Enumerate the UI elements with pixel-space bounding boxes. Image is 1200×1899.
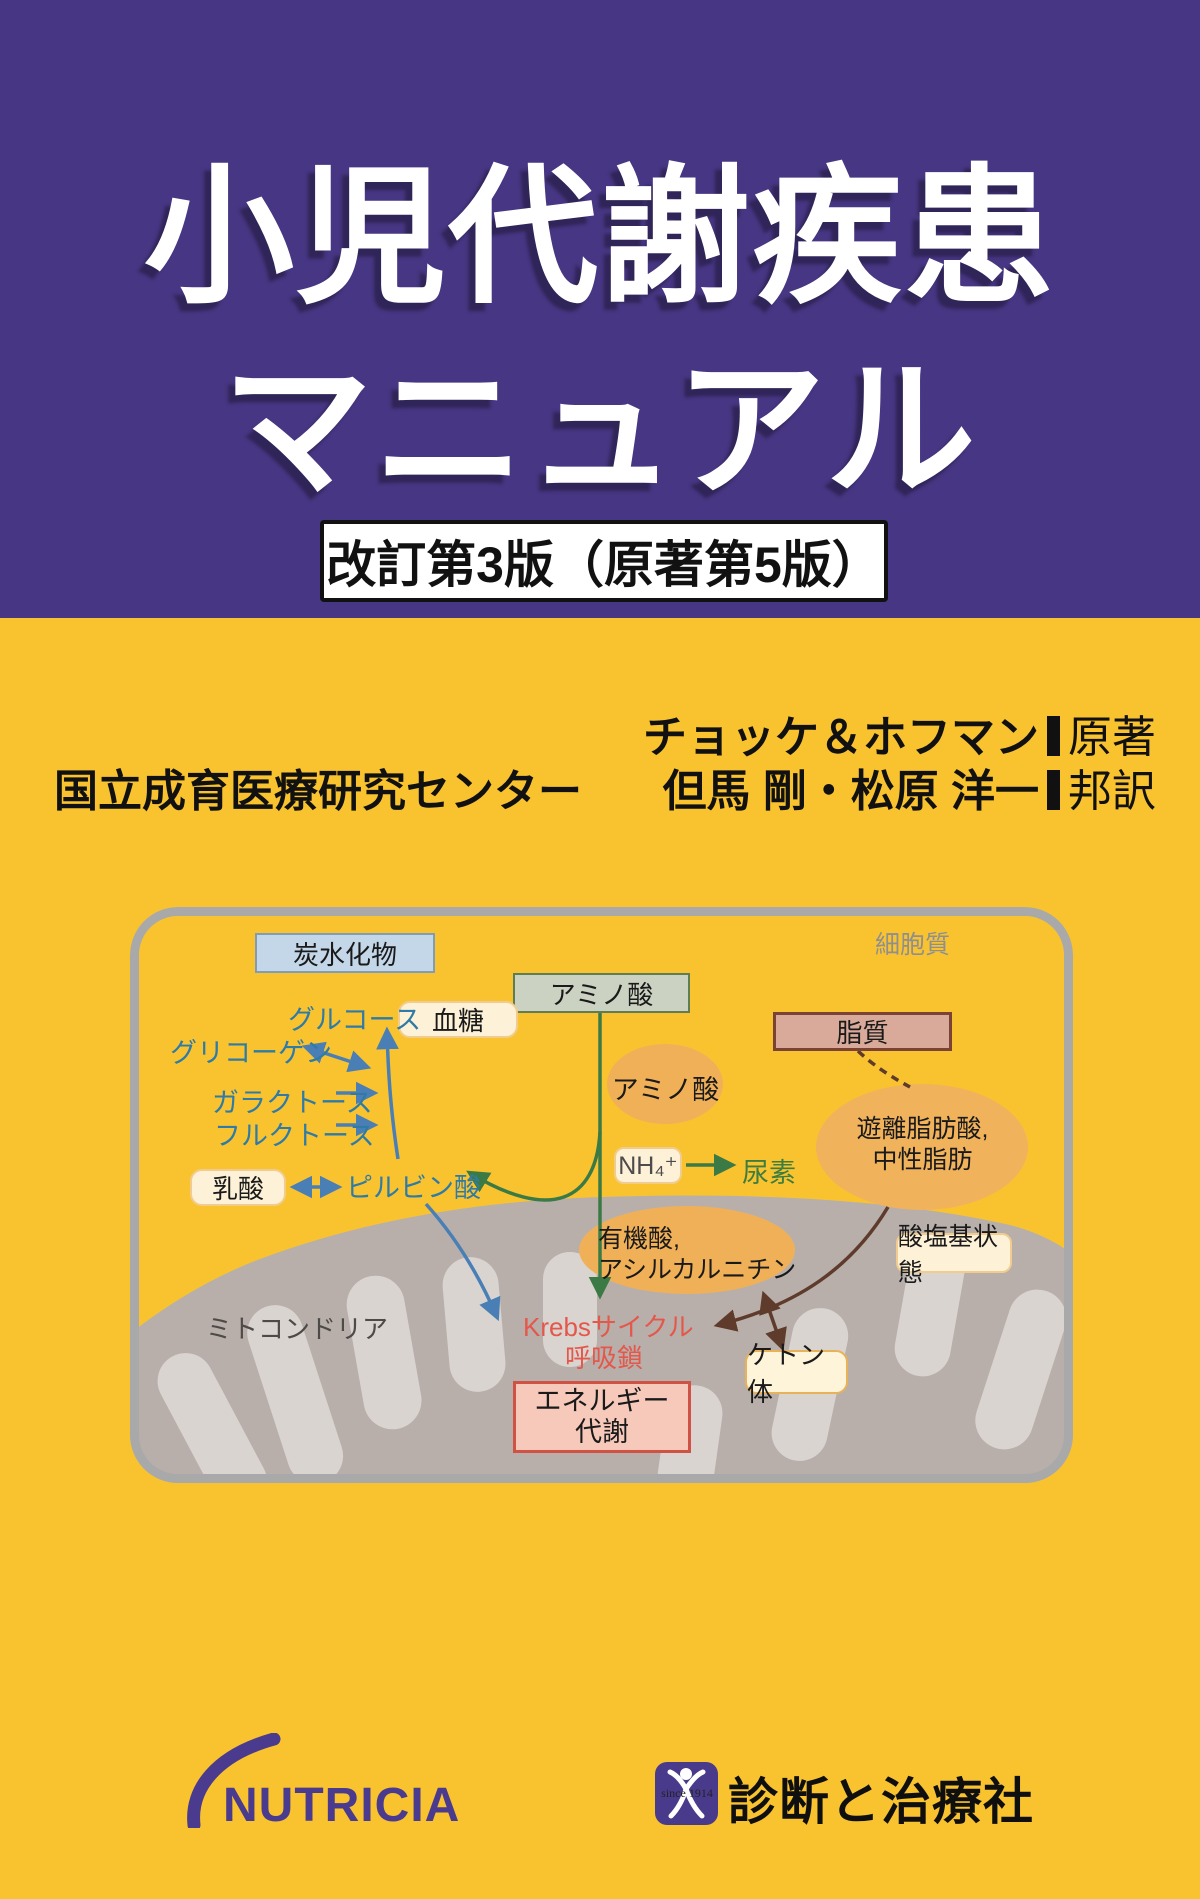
glycogen-label: グリコーゲン xyxy=(170,1031,332,1070)
organic-line1: 有機酸, xyxy=(598,1224,794,1255)
amino-acid-pool-label: アミノ酸 xyxy=(608,1068,723,1107)
institution-label: 国立成育医療研究センター xyxy=(54,755,582,805)
arrow-pyruvate-to-glucose xyxy=(387,1031,398,1159)
metabolic-pathway-diagram: 細胞質 ミトコンドリア 炭水化物 アミノ酸 脂質 血糖 乳酸 NH₄⁺ 酸塩基状… xyxy=(130,907,1073,1483)
energy-line2: 代謝 xyxy=(575,1417,629,1448)
amino-acid-box: アミノ酸 xyxy=(513,973,690,1013)
original-author-row: チョッケ＆ホフマン原著 xyxy=(643,701,1156,751)
publisher-name: 診断と治療社 xyxy=(728,1762,1034,1834)
book-title-line1: 小児代謝疾患 xyxy=(0,162,1200,312)
free-fatty-line2: 中性脂肪 xyxy=(830,1145,1015,1176)
lipid-box: 脂質 xyxy=(773,1012,952,1051)
publisher-since-text: since 1914 xyxy=(648,1786,726,1801)
energy-metabolism-box: エネルギー 代謝 xyxy=(513,1381,691,1453)
free-fatty-acid-label: 遊離脂肪酸, 中性脂肪 xyxy=(830,1114,1015,1177)
arrow-aminoacid-to-pyruvate xyxy=(470,1132,600,1200)
translation-role-label: 邦訳 xyxy=(1068,767,1156,816)
mitochondria-label: ミトコンドリア xyxy=(206,1309,388,1346)
fructose-label: フルクトース xyxy=(214,1114,375,1153)
krebs-line2: 呼吸鎖 xyxy=(523,1343,685,1374)
urea-label: 尿素 xyxy=(742,1151,796,1190)
lactate-box: 乳酸 xyxy=(190,1169,286,1206)
book-title-line2: マニュアル xyxy=(0,355,1200,505)
separator-bar-icon xyxy=(1047,770,1060,810)
pyruvate-label: ピルビン酸 xyxy=(346,1166,481,1205)
acid-base-status-box: 酸塩基状態 xyxy=(896,1233,1012,1273)
separator-bar-icon xyxy=(1047,716,1060,756)
organic-acid-label: 有機酸, アシルカルニチン xyxy=(592,1224,794,1287)
free-fatty-line1: 遊離脂肪酸, xyxy=(830,1114,1015,1145)
krebs-cycle-label: Krebsサイクル 呼吸鎖 xyxy=(523,1312,685,1374)
line-lipid-to-fattyacid xyxy=(858,1051,910,1087)
ammonium-box: NH₄⁺ xyxy=(614,1147,682,1184)
translators: 但馬 剛・松原 洋一 xyxy=(663,767,1039,816)
ketone-body-box: ケトン体 xyxy=(745,1350,848,1394)
krebs-line1: Krebsサイクル xyxy=(523,1312,685,1343)
title-panel: 小児代謝疾患 マニュアル 改訂第3版（原著第5版） xyxy=(0,0,1200,618)
carbohydrate-box: 炭水化物 xyxy=(255,933,435,973)
translator-row: 但馬 剛・松原 洋一邦訳 xyxy=(663,755,1156,805)
book-cover: 小児代謝疾患 マニュアル 改訂第3版（原著第5版） チョッケ＆ホフマン原著 国立… xyxy=(0,0,1200,1899)
cytosol-label: 細胞質 xyxy=(875,925,950,961)
energy-line1: エネルギー xyxy=(535,1386,670,1417)
edition-badge: 改訂第3版（原著第5版） xyxy=(320,520,888,602)
organic-line2: アシルカルニチン xyxy=(598,1255,794,1286)
nutricia-logo: NUTRICIA xyxy=(223,1778,460,1833)
